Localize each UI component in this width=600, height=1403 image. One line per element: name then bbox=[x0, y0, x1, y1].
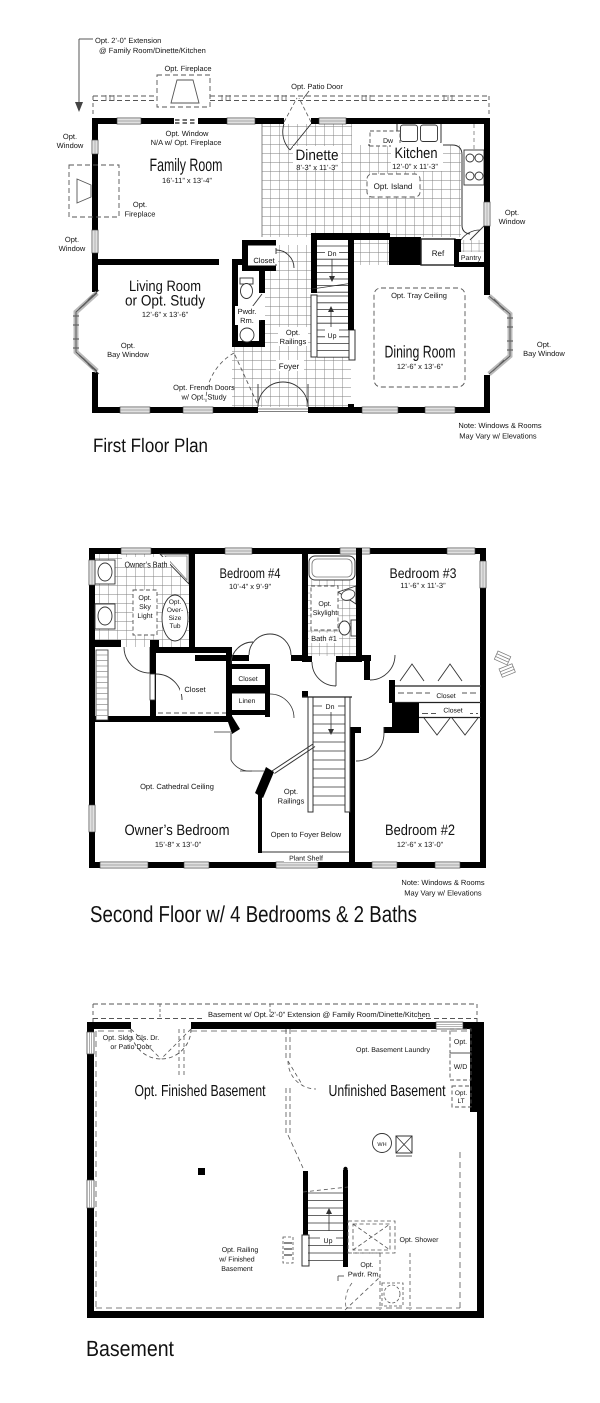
svg-text:Opt.: Opt. bbox=[505, 208, 519, 217]
svg-text:Ref: Ref bbox=[432, 249, 445, 258]
svg-text:Window: Window bbox=[57, 141, 84, 150]
svg-text:Bedroom #3: Bedroom #3 bbox=[390, 565, 457, 581]
svg-text:Light: Light bbox=[137, 612, 152, 620]
svg-text:Owner’s Bedroom: Owner’s Bedroom bbox=[125, 822, 230, 839]
svg-text:8’-3” x 11’-3”: 8’-3” x 11’-3” bbox=[296, 163, 338, 172]
svg-text:Bedroom #4: Bedroom #4 bbox=[220, 565, 281, 581]
svg-text:Size: Size bbox=[169, 615, 182, 622]
svg-text:N/A w/ Opt. Fireplace: N/A w/ Opt. Fireplace bbox=[151, 138, 222, 147]
svg-text:Bay Window: Bay Window bbox=[523, 349, 565, 358]
svg-text:Opt.: Opt. bbox=[65, 235, 79, 244]
svg-text:Basement: Basement bbox=[86, 1336, 174, 1361]
svg-text:LT: LT bbox=[457, 1098, 464, 1105]
svg-text:Dn: Dn bbox=[326, 704, 335, 711]
svg-text:Opt.: Opt. bbox=[537, 340, 551, 349]
svg-text:Closet: Closet bbox=[436, 693, 455, 700]
svg-text:Opt. Finished Basement: Opt. Finished Basement bbox=[135, 1083, 266, 1100]
svg-text:10’-4” x 9’-9”: 10’-4” x 9’-9” bbox=[229, 582, 272, 591]
svg-text:Dining Room: Dining Room bbox=[385, 343, 456, 362]
svg-text:Unfinished Basement: Unfinished Basement bbox=[329, 1083, 446, 1100]
svg-text:Opt. Patio Door: Opt. Patio Door bbox=[291, 82, 343, 91]
svg-text:Foyer: Foyer bbox=[279, 362, 300, 371]
svg-text:Tub: Tub bbox=[170, 623, 181, 630]
svg-text:Pantry: Pantry bbox=[461, 255, 482, 262]
svg-text:Bath #1: Bath #1 bbox=[311, 634, 337, 643]
svg-text:Note: Windows & Rooms: Note: Windows & Rooms bbox=[401, 878, 485, 887]
svg-text:@ Family Room/Dinette/Kitchen: @ Family Room/Dinette/Kitchen bbox=[99, 46, 206, 55]
svg-text:Opt.: Opt. bbox=[286, 328, 300, 337]
svg-text:Bedroom #2: Bedroom #2 bbox=[385, 822, 455, 839]
svg-text:Opt. Railing: Opt. Railing bbox=[222, 1246, 259, 1254]
svg-text:Over-: Over- bbox=[167, 607, 183, 614]
svg-text:Opt. Basement Laundry: Opt. Basement Laundry bbox=[356, 1046, 430, 1054]
svg-text:W/D: W/D bbox=[454, 1063, 468, 1071]
svg-text:Opt. Fireplace: Opt. Fireplace bbox=[164, 64, 211, 73]
svg-text:Opt. Shower: Opt. Shower bbox=[400, 1236, 440, 1244]
svg-text:Skylight: Skylight bbox=[313, 609, 338, 617]
svg-text:Fireplace: Fireplace bbox=[125, 210, 156, 219]
svg-text:Up: Up bbox=[328, 333, 337, 340]
svg-text:Opt. Window: Opt. Window bbox=[166, 129, 210, 138]
svg-text:Window: Window bbox=[499, 217, 526, 226]
svg-text:Opt.: Opt. bbox=[455, 1090, 467, 1097]
svg-text:11’-6” x 11’-3”: 11’-6” x 11’-3” bbox=[400, 581, 446, 590]
svg-text:Pwdr. Rm.: Pwdr. Rm. bbox=[348, 1271, 380, 1279]
svg-text:Window: Window bbox=[59, 244, 86, 253]
svg-text:Rm.: Rm. bbox=[240, 316, 254, 325]
svg-text:Opt. French Doors: Opt. French Doors bbox=[173, 383, 235, 392]
svg-text:15’-8” x 13’-0”: 15’-8” x 13’-0” bbox=[155, 840, 202, 849]
svg-text:Opt. 2’-0” Extension: Opt. 2’-0” Extension bbox=[95, 36, 161, 45]
svg-text:Closet: Closet bbox=[253, 256, 275, 265]
svg-text:Opt.: Opt. bbox=[284, 787, 298, 796]
svg-text:Closet: Closet bbox=[443, 708, 462, 715]
svg-text:12’-6” x 13’-6”: 12’-6” x 13’-6” bbox=[142, 310, 189, 319]
svg-text:Opt.: Opt. bbox=[169, 599, 181, 606]
svg-text:Opt.: Opt. bbox=[138, 595, 151, 602]
svg-text:Opt.: Opt. bbox=[454, 1039, 467, 1046]
svg-text:w/ Finished: w/ Finished bbox=[218, 1256, 255, 1264]
svg-text:Closet: Closet bbox=[184, 685, 206, 694]
svg-text:Opt.: Opt. bbox=[63, 132, 77, 141]
svg-text:Opt.: Opt. bbox=[121, 341, 135, 350]
svg-text:Opt.: Opt. bbox=[318, 601, 331, 608]
svg-text:Basement w/ Opt. 2’-0” Extensi: Basement w/ Opt. 2’-0” Extension @ Famil… bbox=[208, 1010, 430, 1019]
svg-text:WH: WH bbox=[377, 1142, 386, 1148]
svg-text:Up: Up bbox=[324, 1238, 333, 1245]
svg-text:Opt. Tray Ceiling: Opt. Tray Ceiling bbox=[391, 291, 447, 300]
svg-text:Note: Windows & Rooms: Note: Windows & Rooms bbox=[458, 421, 542, 430]
svg-text:Open to Foyer Below: Open to Foyer Below bbox=[271, 830, 342, 839]
svg-text:16’-11” x 13’-4”: 16’-11” x 13’-4” bbox=[162, 176, 212, 185]
svg-text:Basement: Basement bbox=[221, 1266, 253, 1273]
svg-text:Opt. Island: Opt. Island bbox=[374, 182, 413, 191]
svg-text:12’-6” x 13’-0”: 12’-6” x 13’-0” bbox=[397, 840, 444, 849]
svg-text:or Opt. Study: or Opt. Study bbox=[125, 293, 205, 310]
svg-text:Bay Window: Bay Window bbox=[107, 350, 149, 359]
svg-text:w/ Opt. Study: w/ Opt. Study bbox=[180, 393, 226, 402]
svg-text:Pwdr.: Pwdr. bbox=[238, 307, 257, 316]
svg-text:12’-6” x 13’-6”: 12’-6” x 13’-6” bbox=[397, 362, 444, 371]
svg-text:Opt. Sldg. Gls. Dr.: Opt. Sldg. Gls. Dr. bbox=[103, 1034, 159, 1042]
svg-text:Family Room: Family Room bbox=[150, 155, 223, 175]
svg-text:May Vary w/ Elevations: May Vary w/ Elevations bbox=[404, 889, 482, 898]
svg-text:Owner’s Bath: Owner’s Bath bbox=[125, 560, 168, 570]
svg-text:Sky: Sky bbox=[139, 603, 151, 611]
svg-text:Opt.: Opt. bbox=[360, 1262, 373, 1269]
svg-text:12’-0” x 11’-3”: 12’-0” x 11’-3” bbox=[392, 162, 438, 171]
svg-text:or Patio Door: or Patio Door bbox=[110, 1043, 152, 1051]
svg-text:Linen: Linen bbox=[239, 698, 256, 705]
svg-text:Second Floor w/ 4 Bedrooms & 2: Second Floor w/ 4 Bedrooms & 2 Baths bbox=[90, 901, 417, 927]
svg-text:May Vary w/ Elevations: May Vary w/ Elevations bbox=[459, 432, 537, 441]
svg-text:Opt. Cathedral Ceiling: Opt. Cathedral Ceiling bbox=[140, 782, 214, 791]
svg-text:Plant Shelf: Plant Shelf bbox=[289, 855, 323, 863]
svg-text:Dinette: Dinette bbox=[296, 147, 339, 164]
svg-text:Opt.: Opt. bbox=[133, 200, 147, 209]
svg-text:Kitchen: Kitchen bbox=[395, 145, 438, 162]
svg-text:Railings: Railings bbox=[280, 337, 307, 346]
svg-text:Railings: Railings bbox=[278, 797, 305, 806]
svg-text:Closet: Closet bbox=[238, 676, 257, 683]
svg-text:First Floor Plan: First Floor Plan bbox=[93, 435, 208, 457]
svg-text:Dn: Dn bbox=[328, 251, 337, 258]
